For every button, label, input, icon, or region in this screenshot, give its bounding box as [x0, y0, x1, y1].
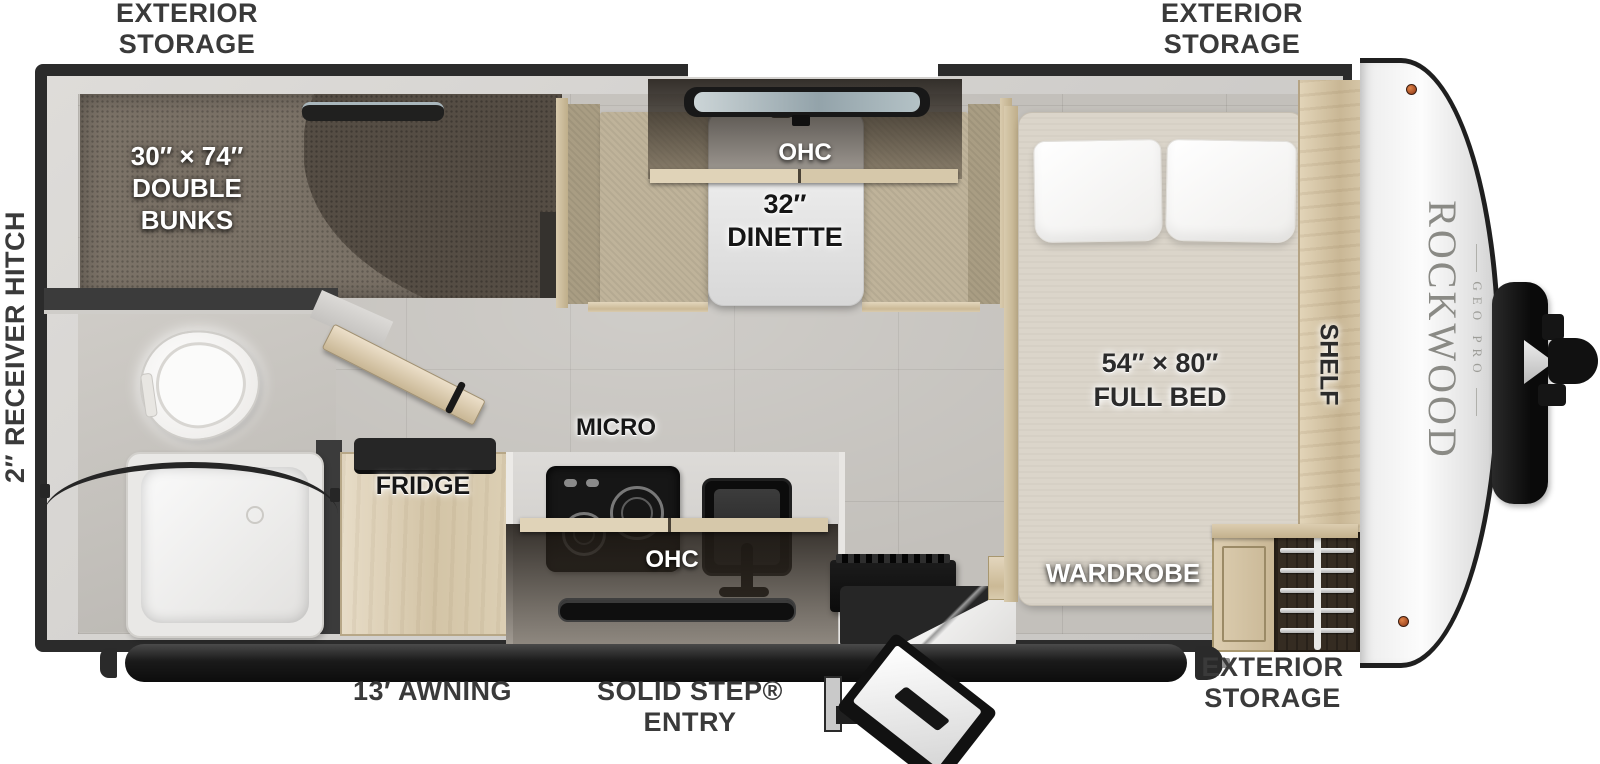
bunks-label: 30″ × 74″ DOUBLE BUNKS	[77, 140, 297, 236]
label-line: EXTERIOR	[77, 0, 297, 29]
bed-frame-rail	[1004, 106, 1018, 602]
wardrobe-door	[1212, 536, 1276, 652]
brand-logo: GEO PRO ROCKWOOD	[1416, 190, 1488, 470]
stove-knob	[564, 479, 577, 487]
rod-end-left	[40, 484, 50, 498]
step-treads	[836, 554, 950, 563]
window-top-wall	[688, 64, 938, 77]
label-line: EXTERIOR	[1165, 652, 1380, 683]
shelf-label: SHELF	[1314, 300, 1343, 430]
label-exterior-storage-bottom-right: EXTERIOR STORAGE	[1165, 652, 1380, 714]
wardrobe-cabinet	[1212, 524, 1358, 648]
label-line: EXTERIOR	[1122, 0, 1342, 29]
brand-sub-text: GEO PRO	[1469, 235, 1485, 424]
dinette-ohc-label: OHC	[648, 139, 962, 167]
window-glass	[694, 92, 920, 112]
bunks-size-text: 30″ × 74″	[77, 140, 297, 172]
hitch-jack	[1542, 314, 1564, 340]
floorplan-canvas: 30″ × 74″ DOUBLE BUNKS FRIDGE	[0, 0, 1600, 764]
pillow-left	[1033, 139, 1163, 243]
window-clip	[792, 115, 810, 126]
wardrobe-door-panel	[1222, 546, 1266, 642]
bench-kick-right	[862, 302, 980, 312]
oven-tray	[354, 438, 496, 474]
wardrobe-label: WARDROBE	[1008, 558, 1238, 589]
counter-tray	[558, 598, 796, 622]
hitch-coupler	[1548, 338, 1598, 384]
bathroom-wall	[44, 288, 338, 314]
bed-size-text: 54″ × 80″	[1018, 346, 1302, 380]
label-exterior-storage-top-left: EXTERIOR STORAGE	[77, 0, 297, 60]
label-line: STORAGE	[1122, 29, 1342, 60]
label-exterior-storage-top-right: EXTERIOR STORAGE	[1122, 0, 1342, 60]
label-line: STORAGE	[1165, 683, 1380, 714]
label-awning: 13′ AWNING	[345, 676, 520, 707]
dinette-label: 32″ DINETTE	[708, 188, 862, 254]
marker-light-bottom	[1398, 616, 1409, 627]
label-line: SOLID STEP®	[590, 676, 790, 707]
bunk-ladder-rail	[302, 102, 444, 121]
bench-wood-post-left	[556, 98, 568, 308]
rod-end-right	[330, 488, 340, 502]
wardrobe-top-trim	[1212, 524, 1358, 538]
label-solid-step-entry: SOLID STEP® ENTRY	[590, 676, 790, 738]
hitch-bracket	[1538, 384, 1566, 406]
toilet	[133, 322, 267, 448]
marker-light-top	[1406, 84, 1417, 95]
fridge-label: FRIDGE	[340, 472, 506, 501]
label-line: STORAGE	[77, 29, 297, 60]
door-handle	[445, 381, 467, 414]
bed-label: 54″ × 80″ FULL BED	[1018, 346, 1302, 414]
stove-knob	[586, 479, 599, 487]
dinette-size-text: 32″	[708, 188, 862, 221]
kitchen-overhead-cabinet	[506, 524, 838, 648]
bunks-line3: BUNKS	[77, 204, 297, 236]
lower-bunk-shadow	[304, 94, 562, 298]
wire-basket-rack	[1274, 532, 1360, 652]
dinette-window	[684, 87, 930, 117]
label-line: ENTRY	[590, 707, 790, 738]
dinette-cabinet-edge	[650, 169, 958, 183]
dinette-backrest-left	[568, 104, 600, 304]
awning-end-cap-left	[100, 648, 117, 678]
bed-text: FULL BED	[1018, 380, 1302, 414]
bunks-line2: DOUBLE	[77, 172, 297, 204]
brand-name-text: ROCKWOOD	[1419, 200, 1466, 460]
dinette-backrest-right	[968, 104, 1000, 304]
kitchen-cabinet-edge	[520, 518, 828, 532]
dinette-text: DINETTE	[708, 221, 862, 254]
kitchen-ohc-label: OHC	[506, 546, 838, 574]
pillow-right	[1165, 139, 1297, 243]
bench-kick-left	[588, 302, 708, 312]
rack-post	[1314, 534, 1321, 650]
label-receiver-hitch: 2″ RECEIVER HITCH	[0, 197, 30, 497]
microwave-label: MICRO	[556, 414, 676, 442]
